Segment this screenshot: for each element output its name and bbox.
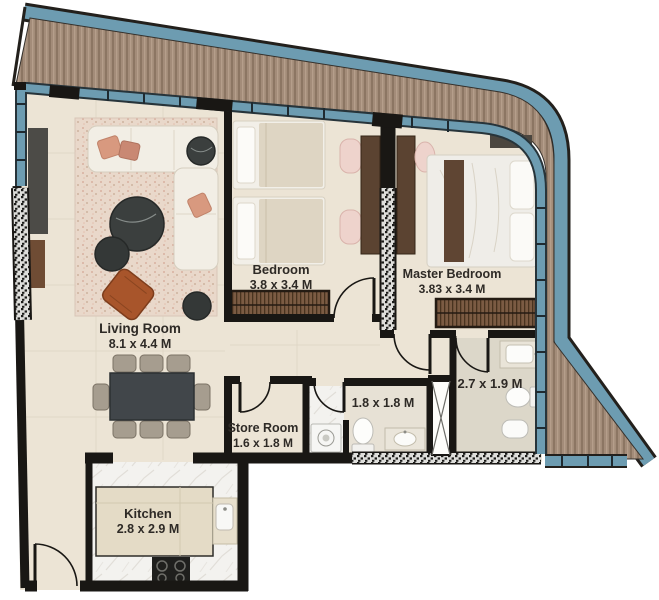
master-side-wardrobe (397, 136, 415, 254)
sofa-right (174, 168, 218, 270)
side-table (187, 137, 215, 165)
store-room-size: 1.6 x 1.8 M (233, 436, 293, 450)
dining-chair (167, 421, 190, 438)
bathroom-size: 1.8 x 1.8 M (352, 396, 415, 410)
twin-bed (233, 197, 325, 265)
dining-chair (113, 421, 136, 438)
tv-console (28, 128, 48, 234)
master-bedroom-size: 3.83 x 3.4 M (419, 282, 486, 296)
utility-nook (311, 424, 341, 452)
bed-runner (444, 160, 464, 262)
bed-pillow (510, 161, 534, 209)
faucet (223, 507, 227, 511)
dining-chair (167, 355, 190, 372)
twin-bed (233, 121, 325, 189)
living-room-label: Living Room (99, 321, 181, 336)
kitchen-label: Kitchen (124, 506, 172, 521)
floor-plan: Living Room 8.1 x 4.4 M Bedroom 3.8 x 3.… (0, 0, 659, 600)
master-bedroom-label: Master Bedroom (403, 267, 502, 281)
bedroom-size: 3.8 x 3.4 M (250, 278, 313, 292)
side-table (183, 292, 211, 320)
bed-pillow (510, 213, 534, 261)
toilet-bowl (353, 418, 373, 444)
sink-basin (506, 345, 533, 363)
store-room-label: Store Room (228, 421, 299, 435)
master-bathroom-size: 2.7 x 1.9 M (457, 376, 522, 391)
pink-chair (340, 210, 361, 244)
dining-chair (113, 355, 136, 372)
dining-table (110, 373, 194, 420)
linen-closet (432, 381, 450, 455)
washer-drum (323, 435, 330, 442)
dining-chair (93, 384, 109, 410)
throw-pillow (118, 140, 140, 161)
sink-basin (394, 432, 416, 446)
dining-chair (194, 384, 210, 410)
living-room-size: 8.1 x 4.4 M (109, 337, 172, 351)
kitchen-size: 2.8 x 2.9 M (117, 522, 180, 536)
dining-chair (140, 355, 163, 372)
faucet (404, 431, 407, 434)
dining-chair (140, 421, 163, 438)
bedroom-label: Bedroom (252, 262, 309, 277)
floor-plan-page: Living Room 8.1 x 4.4 M Bedroom 3.8 x 3.… (0, 0, 659, 600)
bedroom-side-wardrobe (361, 136, 380, 254)
bidet (502, 420, 528, 438)
pink-chair (340, 139, 361, 173)
coffee-table-small (95, 237, 129, 271)
